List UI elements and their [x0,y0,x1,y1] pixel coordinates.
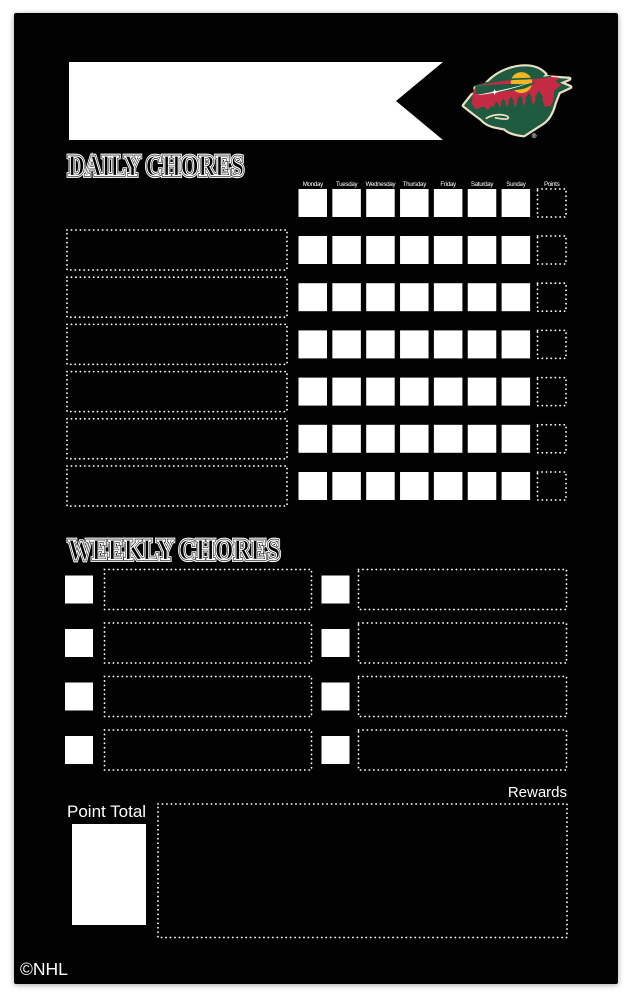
svg-text:Monday: Monday [303,181,324,188]
svg-text:Wednesday: Wednesday [365,181,396,188]
svg-text:Thursday: Thursday [403,181,428,188]
svg-text:Point Total: Point Total [67,802,146,821]
svg-text:Points: Points [544,181,560,188]
svg-text:©NHL: ©NHL [20,959,68,979]
svg-text:Rewards: Rewards [508,784,567,801]
svg-text:WEEKLY CHORES: WEEKLY CHORES [68,533,280,566]
svg-text:DAILY CHORES: DAILY CHORES [68,149,244,183]
svg-text:Friday: Friday [440,181,457,188]
svg-text:Sunday: Sunday [506,181,526,188]
svg-text:Saturday: Saturday [471,181,495,188]
svg-text:Tuesday: Tuesday [336,181,359,188]
